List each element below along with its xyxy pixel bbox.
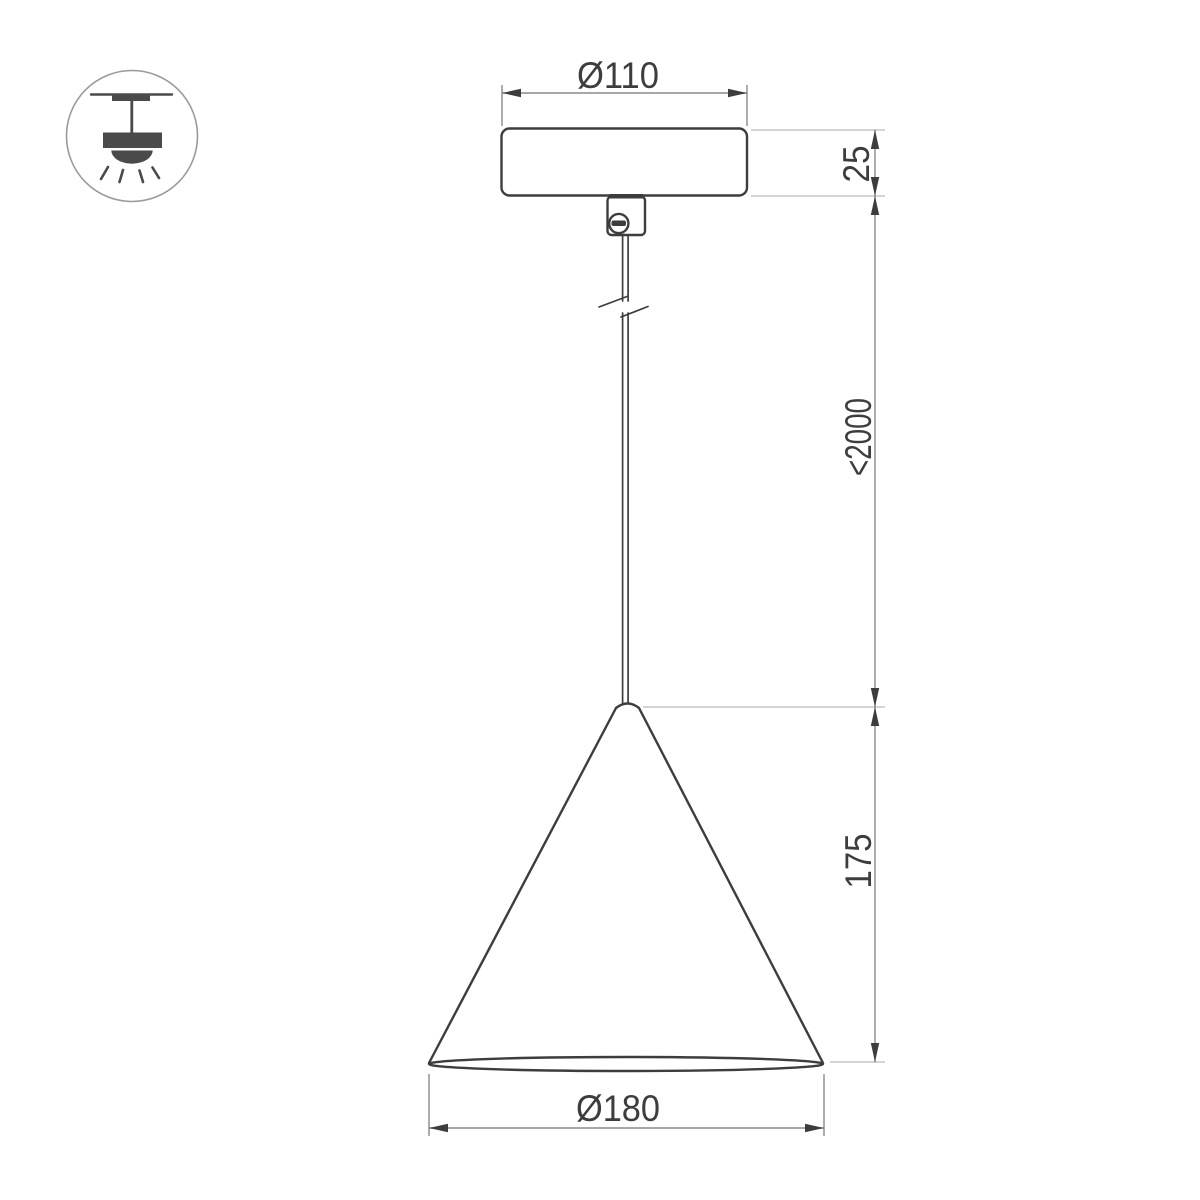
canopy-outline	[502, 129, 748, 196]
ceiling-pendant-light-icon	[67, 71, 198, 202]
dim-label-suspension-length: <2000	[838, 398, 879, 476]
technical-drawing: Ø110 25 <2000 175	[0, 0, 1200, 1200]
screw-slot	[612, 221, 627, 227]
dim-canopy-diameter: Ø110	[502, 55, 747, 126]
cable-gland	[608, 194, 646, 235]
dim-label-shade-diameter: Ø180	[576, 1088, 660, 1129]
cone-sides	[429, 704, 823, 1064]
dim-label-canopy-diameter: Ø110	[577, 55, 659, 96]
canopy	[502, 129, 748, 196]
dim-suspension-length: <2000	[643, 196, 885, 707]
cone-shade	[429, 704, 823, 1072]
drawing-canvas: Ø110 25 <2000 175	[0, 0, 1200, 1200]
cable-break-icon	[599, 297, 648, 318]
icon-lamp-body	[103, 133, 162, 149]
dim-label-canopy-height: 25	[836, 146, 877, 183]
cone-bottom-rim	[429, 1057, 823, 1071]
dim-canopy-height: 25	[751, 130, 885, 196]
gland-top-bar	[610, 194, 644, 199]
suspension-cable	[599, 236, 648, 704]
dim-label-shade-height: 175	[838, 834, 879, 889]
dim-shade-height: 175	[830, 707, 885, 1062]
dim-shade-diameter: Ø180	[429, 1074, 824, 1136]
